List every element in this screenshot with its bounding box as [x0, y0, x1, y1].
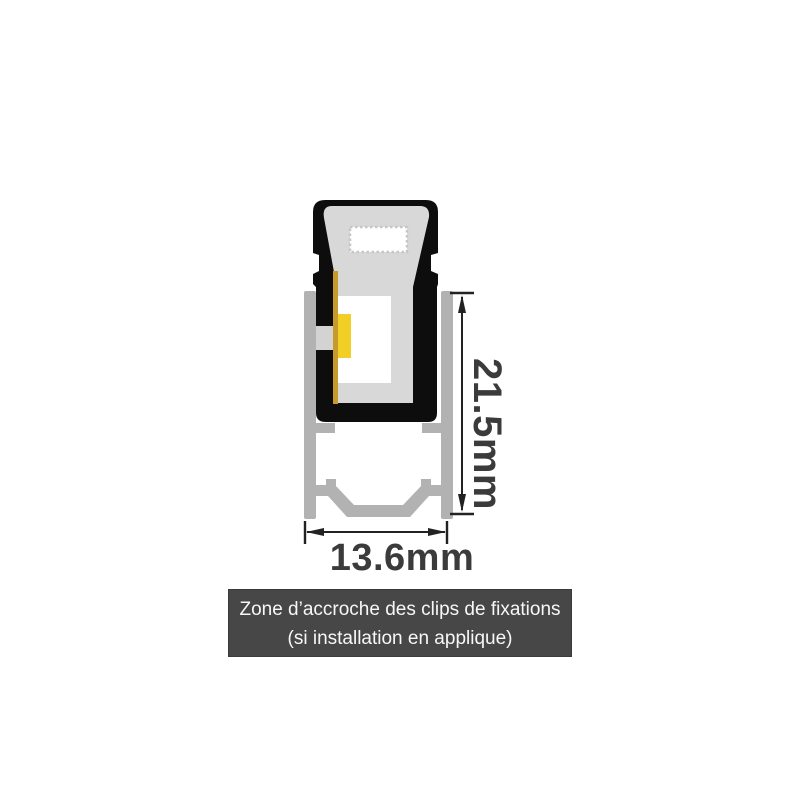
width-dim-arrow-left: [306, 528, 324, 536]
side-clip-notch: [316, 326, 333, 350]
caption-line-1: Zone d’accroche des clips de fixations: [229, 595, 571, 624]
caption-box: Zone d’accroche des clips de fixations (…: [228, 589, 572, 657]
channel-right-tab: [422, 423, 441, 433]
width-dimension: 13.6mm: [305, 521, 474, 579]
channel-left-wall: [304, 291, 316, 519]
height-dimension: 21.5mm: [450, 293, 509, 514]
led-chip: [338, 314, 351, 358]
height-dim-arrow-down: [458, 494, 466, 512]
width-dim-label: 13.6mm: [330, 537, 475, 579]
led-pcb-strip: [333, 271, 338, 404]
channel-base-groove: [316, 485, 441, 517]
diagram-page: 21.5mm 13.6mm Zone d’accroche des clips …: [0, 0, 800, 800]
width-dim-arrow-right: [428, 528, 446, 536]
neon-flex-profile: [313, 200, 438, 422]
channel-left-tab: [316, 423, 335, 433]
profile-cross-section-drawing: 21.5mm 13.6mm: [0, 0, 800, 800]
height-dim-label: 21.5mm: [465, 358, 509, 510]
height-dim-arrow-up: [458, 295, 466, 313]
caption-line-2: (si installation en applique): [229, 624, 571, 653]
channel-right-wall: [441, 291, 453, 519]
top-serrated-window: [350, 227, 407, 252]
